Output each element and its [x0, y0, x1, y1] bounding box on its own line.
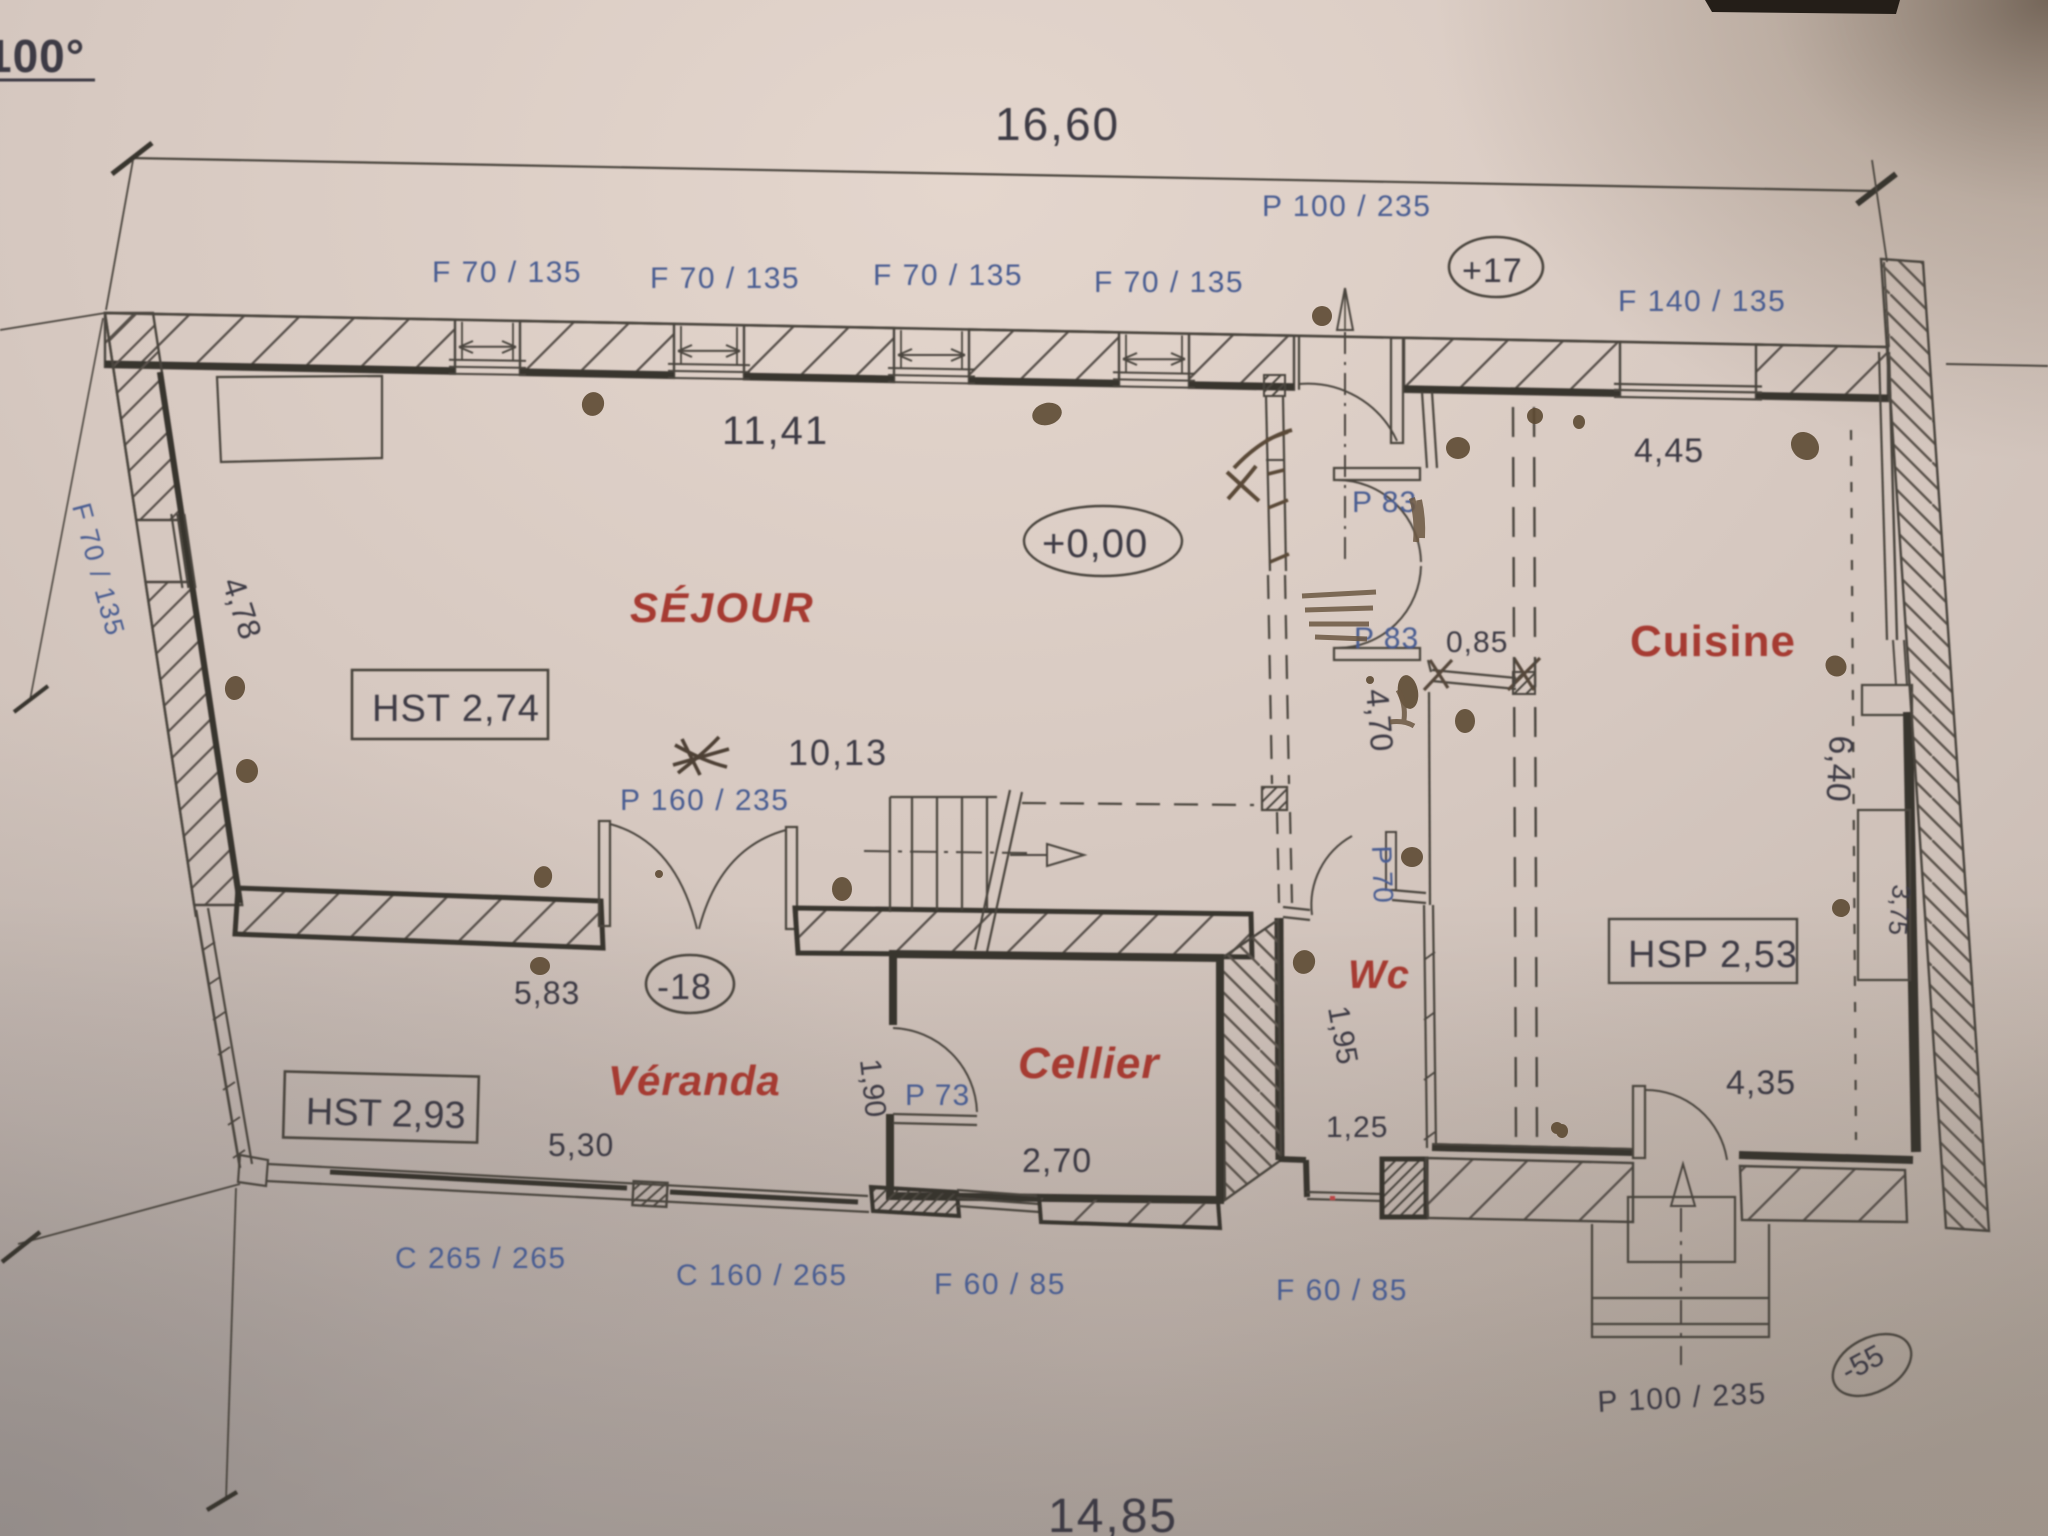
svg-text:-18: -18: [657, 966, 712, 1007]
svg-text:3,75: 3,75: [1883, 883, 1917, 936]
svg-text:+17: +17: [1462, 252, 1523, 290]
svg-text:4,45: 4,45: [1634, 432, 1704, 470]
svg-text:P 70: P 70: [1366, 845, 1399, 903]
svg-text:Cuisine: Cuisine: [1630, 617, 1796, 666]
svg-text:6,40: 6,40: [1819, 735, 1860, 803]
svg-text:+0,00: +0,00: [1042, 522, 1148, 566]
svg-text:2,70: 2,70: [1022, 1142, 1092, 1180]
svg-text:Véranda: Véranda: [608, 1057, 781, 1104]
svg-text:Wc: Wc: [1348, 953, 1410, 997]
svg-text:F 70 / 135: F 70 / 135: [650, 262, 800, 295]
svg-text:Cellier: Cellier: [1018, 1039, 1161, 1088]
svg-text:0,85: 0,85: [1446, 626, 1508, 659]
svg-text:F 60 / 85: F 60 / 85: [1276, 1274, 1408, 1307]
svg-text:F 140 / 135: F 140 / 135: [1618, 285, 1786, 318]
svg-text:HST 2,74: HST 2,74: [372, 688, 540, 730]
svg-text:10,13: 10,13: [788, 732, 888, 773]
svg-text:5,83: 5,83: [514, 975, 580, 1011]
svg-text:4,35: 4,35: [1726, 1064, 1796, 1102]
svg-text:C 265 / 265: C 265 / 265: [395, 1242, 567, 1275]
svg-text:100°: 100°: [0, 30, 85, 82]
svg-text:P 100 / 235: P 100 / 235: [1262, 190, 1431, 223]
svg-text:P 73: P 73: [905, 1079, 970, 1112]
svg-text:11,41: 11,41: [722, 409, 829, 453]
svg-text:P 160 / 235: P 160 / 235: [620, 784, 789, 817]
svg-text:HSP 2,53: HSP 2,53: [1628, 934, 1798, 976]
svg-text:F 70 / 135: F 70 / 135: [432, 256, 582, 289]
svg-text:C 160 / 265: C 160 / 265: [676, 1259, 848, 1292]
svg-text:16,60: 16,60: [995, 98, 1120, 150]
svg-text:5,30: 5,30: [548, 1127, 614, 1163]
svg-text:1,25: 1,25: [1326, 1111, 1388, 1144]
svg-text:P 83: P 83: [1352, 486, 1417, 519]
svg-text:1,90: 1,90: [853, 1057, 892, 1119]
svg-text:14,85: 14,85: [1048, 1490, 1178, 1536]
svg-text:F 60 / 85: F 60 / 85: [934, 1268, 1066, 1301]
svg-text:SÉJOUR: SÉJOUR: [630, 584, 815, 631]
svg-text:F 70 / 135: F 70 / 135: [1094, 266, 1244, 299]
svg-text:HST 2,93: HST 2,93: [305, 1091, 466, 1137]
svg-text:F 70 / 135: F 70 / 135: [873, 259, 1023, 292]
